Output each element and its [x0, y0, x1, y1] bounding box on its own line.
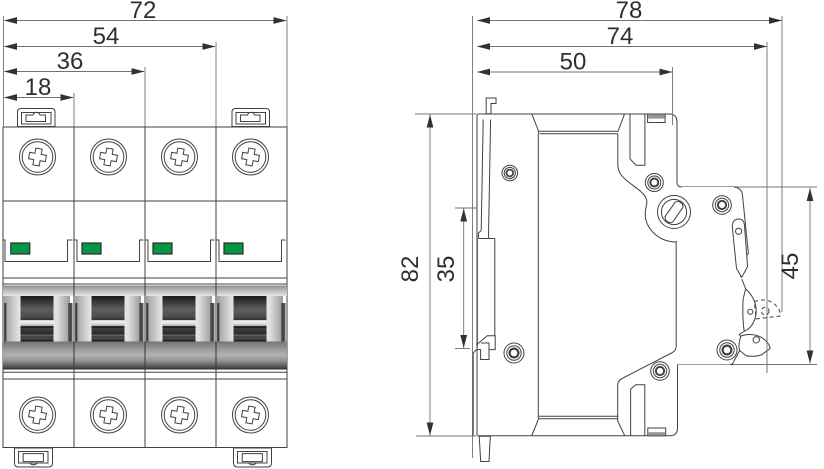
svg-text:72: 72 [130, 0, 157, 24]
svg-text:82: 82 [397, 256, 424, 283]
svg-text:18: 18 [25, 74, 52, 101]
svg-text:36: 36 [57, 48, 84, 75]
svg-text:78: 78 [616, 0, 643, 24]
svg-text:50: 50 [560, 49, 587, 76]
svg-text:35: 35 [433, 256, 460, 283]
svg-text:54: 54 [93, 23, 120, 50]
svg-text:45: 45 [777, 253, 804, 280]
svg-text:74: 74 [607, 23, 634, 50]
